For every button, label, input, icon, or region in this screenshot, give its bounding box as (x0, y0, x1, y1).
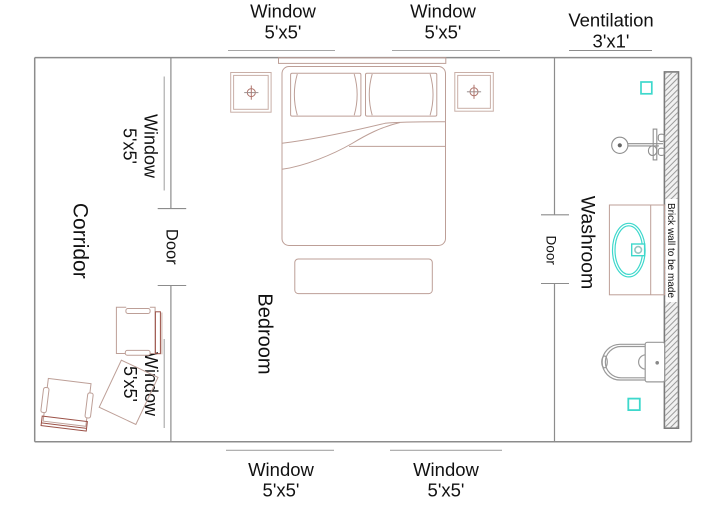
svg-text:5'x5': 5'x5' (263, 480, 300, 501)
svg-text:Window: Window (141, 114, 161, 179)
svg-text:Bedroom: Bedroom (254, 293, 276, 374)
svg-text:Window: Window (413, 459, 479, 480)
svg-text:Window: Window (410, 1, 476, 22)
svg-text:Corridor: Corridor (68, 203, 91, 279)
svg-text:Brick wall to be made: Brick wall to be made (665, 203, 676, 298)
svg-text:5'x5': 5'x5' (265, 22, 302, 43)
svg-text:5'x5': 5'x5' (425, 22, 462, 43)
svg-text:Door: Door (162, 229, 180, 265)
svg-text:Window: Window (248, 459, 314, 480)
svg-text:3'x1': 3'x1' (593, 30, 630, 51)
svg-text:Door: Door (544, 236, 559, 266)
svg-text:5'x5': 5'x5' (428, 480, 465, 501)
svg-text:Window: Window (250, 1, 316, 22)
svg-text:Washroom: Washroom (577, 196, 599, 290)
svg-text:5'x5': 5'x5' (120, 366, 140, 402)
svg-text:5'x5': 5'x5' (120, 128, 140, 164)
svg-text:Ventilation: Ventilation (568, 10, 653, 31)
